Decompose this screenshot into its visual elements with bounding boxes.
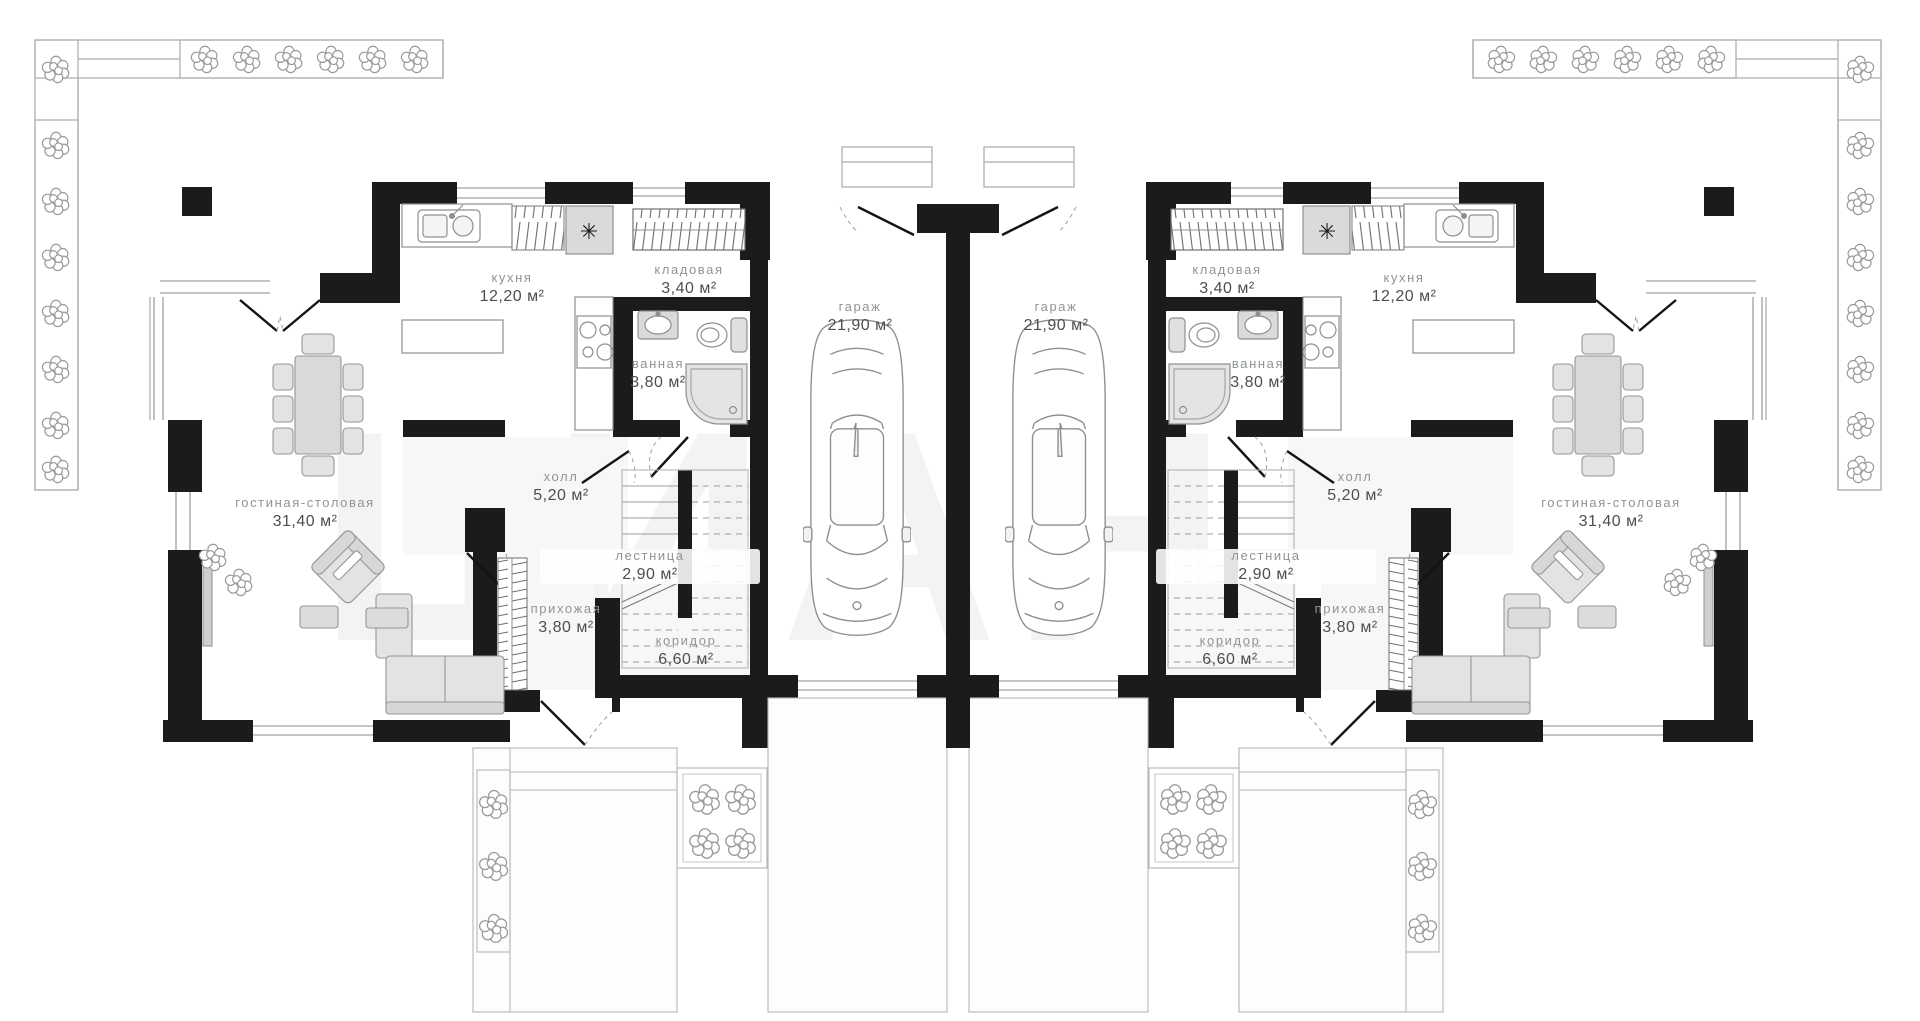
unit-left — [35, 40, 947, 1012]
unit-right — [969, 40, 1881, 1012]
floor-plan-drawing: ✳ — [0, 0, 1920, 1021]
floor-plan: ✳ — [0, 0, 1920, 1021]
